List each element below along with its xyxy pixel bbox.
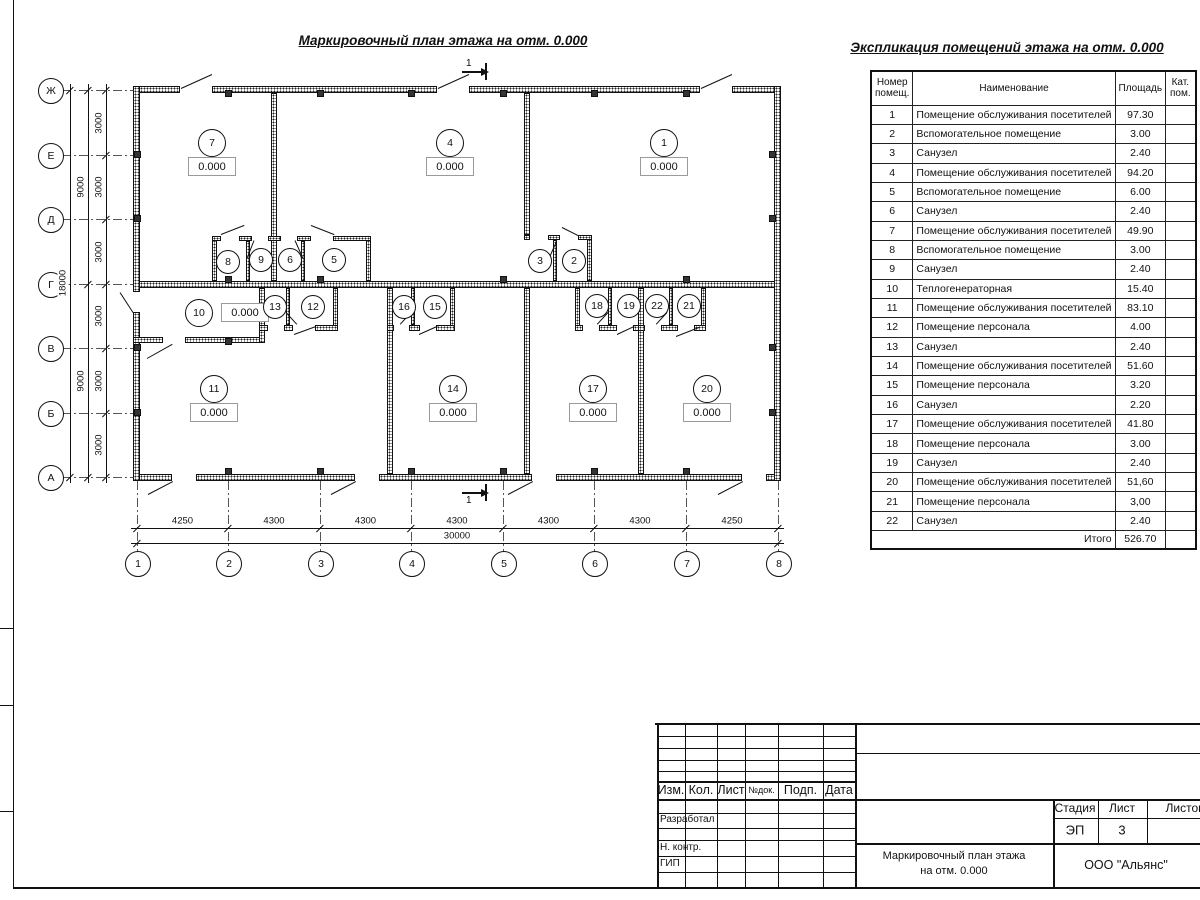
title-block-line [855, 843, 1200, 845]
title-block-line [657, 736, 855, 737]
document-title: Маркировочный план этажа на отм. 0.000 [883, 849, 1026, 879]
title-block-line [685, 723, 686, 888]
title-block-line [1053, 818, 1200, 819]
title-block-col-header: Изм. [658, 783, 685, 797]
drawing-sheet: Маркировочный план этажа на отм. 0.000 Э… [0, 0, 1200, 900]
stage-value: ЭП [1066, 823, 1085, 838]
title-block-line [657, 723, 659, 888]
sheets-label: Листов [1166, 801, 1200, 815]
title-block-line [657, 771, 855, 772]
title-block-line [823, 723, 824, 888]
title-block-line [655, 723, 1200, 725]
title-block-line [657, 840, 855, 841]
title-block-line [855, 753, 1200, 754]
company-name: ООО "Альянс" [1084, 858, 1168, 872]
title-block-row-label: ГИП [660, 858, 680, 869]
title-block-col-header: №док. [748, 785, 774, 795]
title-block-col-header: Дата [825, 783, 853, 797]
title-block-line [657, 856, 855, 857]
title-block-line [1147, 799, 1148, 843]
title-block-col-header: Подп. [784, 783, 817, 797]
title-block-line [657, 872, 855, 873]
title-block-line [855, 723, 857, 888]
title-block-line [657, 828, 855, 829]
title-block-line [1098, 799, 1099, 843]
title-block-line [657, 760, 855, 761]
title-block-col-header: Лист [717, 783, 744, 797]
title-block-line [717, 723, 718, 888]
title-block-line [657, 748, 855, 749]
title-block-row-label: Разработал [660, 814, 714, 825]
title-block-row-label: Н. контр. [660, 842, 701, 853]
title-block-line [745, 723, 746, 888]
sheet-value: 3 [1118, 823, 1125, 838]
title-block-line [778, 723, 779, 888]
title-block-col-header: Кол. [689, 783, 714, 797]
title-block: Изм.Кол.Лист№док.Подп.ДатаРазработалН. к… [0, 0, 1200, 900]
sheet-label: Лист [1109, 801, 1135, 815]
stage-label: Стадия [1055, 801, 1096, 815]
